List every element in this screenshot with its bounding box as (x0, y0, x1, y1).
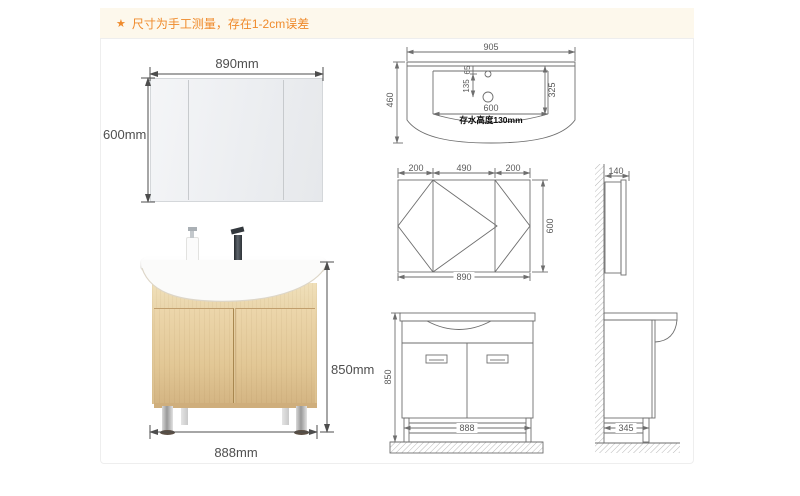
mirror-divider-right (283, 80, 284, 200)
dim-140: 140 (608, 166, 623, 176)
dim-905: 905 (483, 42, 498, 52)
dim-460: 460 (385, 92, 395, 107)
bottle-pump-head (188, 227, 197, 231)
mirror-width-label: 890mm (215, 57, 258, 71)
measurement-note-text: 尺寸为手工测量，存在1-2cm误差 (132, 15, 309, 32)
cabinet-door-left (154, 308, 234, 403)
mirror-divider-left (188, 80, 189, 200)
product-dimension-sheet: ★ 尺寸为手工测量，存在1-2cm误差 (0, 0, 800, 496)
cabinet-leg-rear-right (282, 405, 289, 425)
faucet (234, 235, 242, 264)
dim-890: 890 (453, 272, 474, 282)
cabinet-leg-front-right (296, 406, 307, 432)
dim-325: 325 (547, 82, 557, 97)
water-height-note: 存水高度130mm (459, 115, 522, 125)
lotion-bottle (186, 237, 199, 263)
dim-200-right: 200 (505, 163, 520, 173)
measurement-note-bar: ★ 尺寸为手工测量，存在1-2cm误差 (100, 8, 694, 38)
cabinet-door-right (235, 308, 315, 403)
leg-foot-left (160, 430, 175, 435)
dim-888: 888 (456, 423, 477, 433)
dim-600-basin: 600 (483, 103, 498, 113)
dim-600-height: 600 (545, 218, 555, 233)
vanity-cabinet-body (152, 283, 317, 404)
cabinet-height-label: 850mm (331, 363, 374, 377)
leg-foot-right (294, 430, 309, 435)
dim-490: 490 (456, 163, 471, 173)
star-icon: ★ (116, 17, 126, 30)
cabinet-leg-front-left (162, 406, 173, 432)
dim-850: 850 (383, 369, 393, 384)
mirror-height-label: 600mm (103, 128, 146, 142)
cabinet-plinth (154, 403, 317, 408)
dim-200-left: 200 (408, 163, 423, 173)
mirror-image (150, 78, 323, 202)
cabinet-leg-rear-left (181, 405, 188, 425)
dim-345: 345 (615, 423, 636, 433)
dim-135: 135 (462, 79, 472, 92)
dim-65: 65 (463, 66, 473, 75)
cabinet-width-label: 888mm (214, 446, 257, 460)
